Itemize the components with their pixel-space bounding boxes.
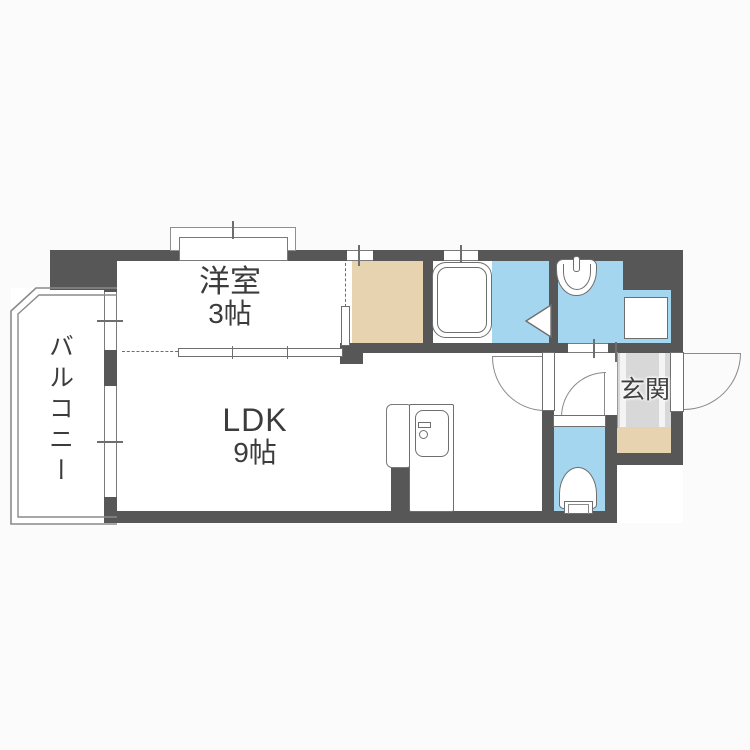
wall-segment (610, 453, 683, 465)
sliding-door (178, 348, 343, 357)
wall-segment (671, 250, 683, 352)
closet-dashed-line (122, 351, 178, 352)
wall-segment (340, 343, 363, 364)
window-tick (97, 441, 123, 443)
wall-segment (104, 250, 117, 292)
closet-dashed-line (345, 263, 346, 307)
window-tick (358, 245, 360, 266)
western-room-size: 3帖 (160, 299, 300, 329)
kitchen-handle (418, 422, 431, 428)
wall-segment (104, 350, 117, 386)
doorway-tick (593, 339, 595, 358)
ldk-name: LDK (185, 404, 325, 438)
balcony-label: バルコニー (46, 320, 73, 500)
toilet-door-leaf (553, 415, 606, 427)
entrance-label: 玄関 (616, 377, 674, 404)
bay-window-inner (179, 237, 288, 261)
sliding-door-tick (287, 346, 288, 359)
closet-floor (352, 261, 423, 343)
window-tick (97, 320, 123, 322)
wall-segment (671, 412, 683, 457)
window-tick (232, 221, 234, 239)
closet-door (341, 306, 350, 346)
entrance-step (614, 427, 673, 454)
wall-segment (605, 415, 617, 523)
door-swing-arc (684, 353, 741, 410)
ldk-size: 9帖 (185, 438, 325, 468)
ldk-door-leaf (542, 352, 555, 411)
washroom-doorway (568, 343, 608, 353)
wall-segment (340, 343, 683, 353)
washing-machine-pan-icon (624, 297, 668, 339)
floor-plan: 洋室 3帖 LDK 9帖 バルコニー 玄関 (0, 0, 750, 750)
faucet-icon (573, 256, 580, 272)
wall-segment (104, 511, 617, 523)
sliding-door-tick (232, 346, 233, 359)
ldk-label: LDK 9帖 (185, 404, 325, 468)
bathtub-icon-inner (437, 267, 487, 333)
window (347, 250, 373, 261)
kitchen-knob (419, 430, 428, 439)
wall-segment (623, 250, 671, 290)
western-room-name: 洋室 (160, 266, 300, 299)
toilet-tank-inner (568, 504, 589, 514)
bathroom-wet-floor (492, 261, 549, 343)
western-room-label: 洋室 3帖 (160, 266, 300, 329)
